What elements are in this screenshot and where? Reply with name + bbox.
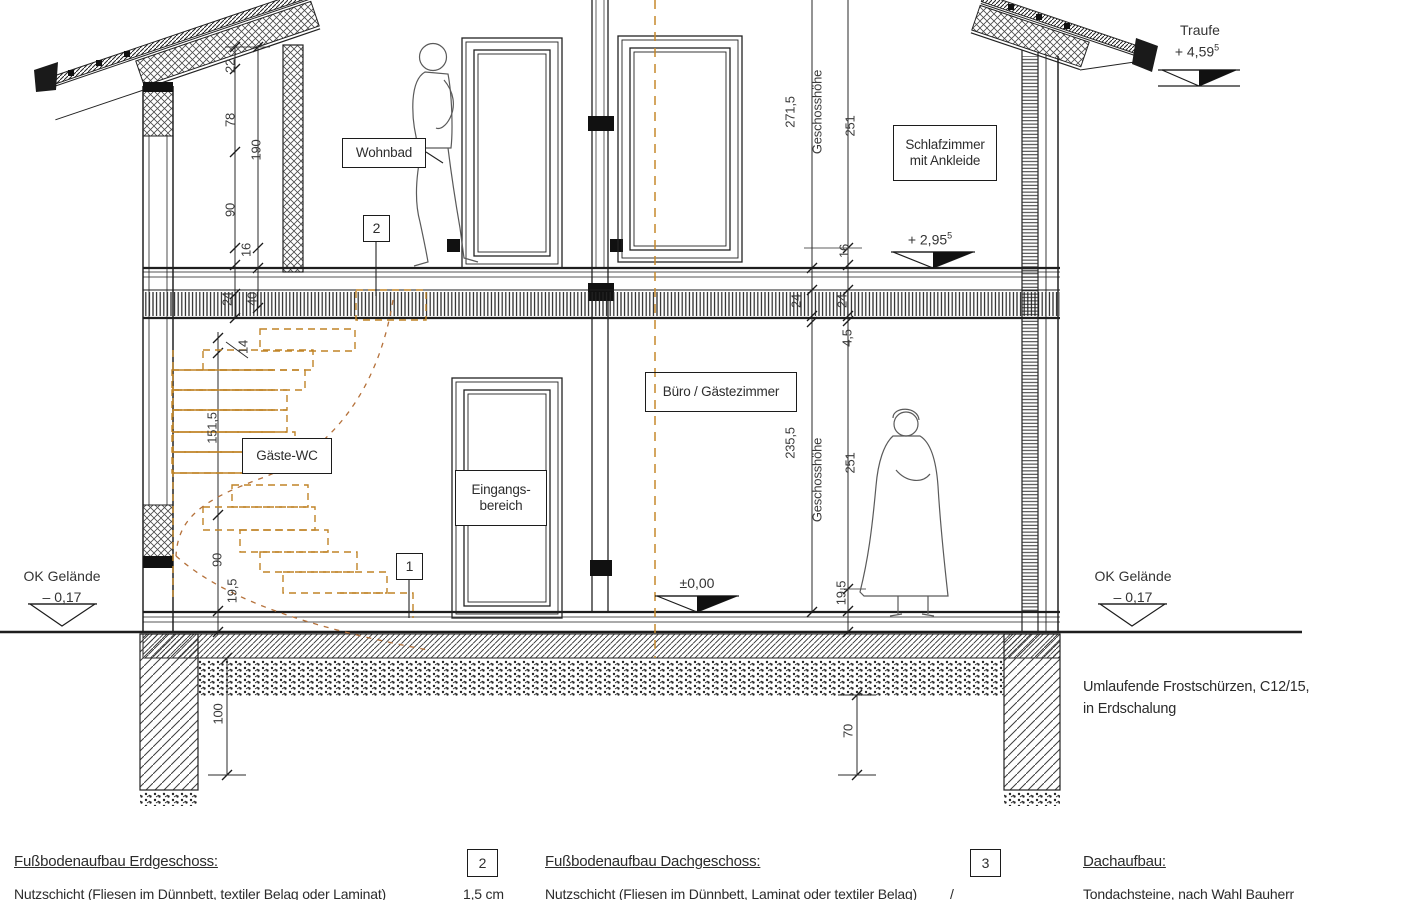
gelaende-left-value: – 0,17: [43, 589, 82, 605]
dim-og-251: 251: [844, 115, 859, 136]
traufe-level-value: + 4,595: [1175, 43, 1219, 60]
legend-dach-item: Tondachsteine, nach Wahl Bauherr: [1083, 886, 1294, 900]
gelaende-right-marker: [1098, 604, 1167, 626]
dim-40: 40: [246, 292, 261, 306]
legend-callout-3: 3: [970, 849, 1001, 877]
dim-eg-height: 235,5: [784, 427, 799, 459]
dim-151-5: 151,5: [206, 412, 221, 444]
eg-level-marker: [655, 596, 739, 612]
legend-dg-item: Nutzschicht (Fliesen im Dünnbett, Lamina…: [545, 886, 917, 900]
legend-eg-title: Fußbodenaufbau Erdgeschoss:: [14, 853, 218, 870]
section-drawing: Traufe + 4,595 + 2,955 ±0,00 OK Gelände …: [0, 0, 1410, 900]
dim-16-left: 16: [240, 243, 255, 257]
roof-right: [971, 0, 1158, 72]
dim-og-height: 271,5: [784, 96, 799, 128]
og-level-value: + 2,955: [908, 231, 952, 248]
legend-eg-item: Nutzschicht (Fliesen im Dünnbett, textil…: [14, 886, 386, 900]
dim-14: 14: [237, 340, 252, 354]
dim-19-5-right: 19,5: [835, 581, 850, 606]
dim-16-right: 16: [838, 244, 853, 258]
traufe-label: Traufe: [1180, 22, 1220, 38]
room-label-gaeste-wc: Gäste-WC: [242, 438, 332, 474]
dim-og-geschosshoehe: Geschosshöhe: [811, 70, 826, 154]
gelaende-left-marker: [28, 604, 97, 626]
legend-callout-2: 2: [467, 849, 498, 877]
gelaende-right-label: OK Gelände: [1094, 568, 1171, 584]
dim-190: 190: [250, 139, 265, 160]
traufe-level-marker: [1158, 70, 1240, 86]
legend-dg-value: /: [950, 886, 954, 900]
dim-24-right: 24: [836, 294, 851, 308]
callout-2: 2: [363, 215, 390, 242]
callout-1: 1: [396, 553, 423, 580]
dim-22: 22: [224, 59, 239, 73]
legend-eg-value: 1,5 cm: [463, 886, 504, 900]
legend-dach-title: Dachaufbau:: [1083, 853, 1166, 870]
gelaende-right-value: – 0,17: [1114, 589, 1153, 605]
dim-90-eg: 90: [211, 553, 226, 567]
dim-24-left: 24: [221, 292, 236, 306]
dim-70: 70: [842, 724, 857, 738]
window-upper-right: [618, 36, 742, 262]
frost-note-line2: in Erdschalung: [1083, 701, 1176, 718]
room-label-eingangsbereich: Eingangs- bereich: [455, 470, 547, 526]
room-label-wohnbad: Wohnbad: [342, 138, 426, 168]
dim-90-og: 90: [224, 203, 239, 217]
dim-eg-251: 251: [844, 452, 859, 473]
eg-level-value: ±0,00: [680, 575, 715, 591]
room-label-buero: Büro / Gästezimmer: [645, 372, 797, 412]
gelaende-left-label: OK Gelände: [23, 568, 100, 584]
foundation: [140, 634, 1060, 806]
roof-left: [34, 0, 320, 120]
room-label-schlafzimmer: Schlafzimmer mit Ankleide: [893, 125, 997, 181]
dim-eg-geschosshoehe: Geschosshöhe: [811, 438, 826, 522]
dim-24-mid: 24: [790, 294, 805, 308]
frost-note-line1: Umlaufende Frostschürzen, C12/15,: [1083, 679, 1309, 696]
dim-19-5-left: 19,5: [226, 579, 241, 604]
dim-78: 78: [224, 113, 239, 127]
dim-4-5: 4,5: [841, 329, 856, 346]
window-upper-left: [462, 38, 562, 268]
legend-dg-title: Fußbodenaufbau Dachgeschoss:: [545, 853, 760, 870]
stair-walkline: [176, 300, 428, 650]
dim-100: 100: [212, 703, 227, 724]
drawing-linework: [0, 0, 1410, 900]
og-level-marker: [891, 252, 975, 268]
person-figure-woman: [860, 409, 948, 616]
